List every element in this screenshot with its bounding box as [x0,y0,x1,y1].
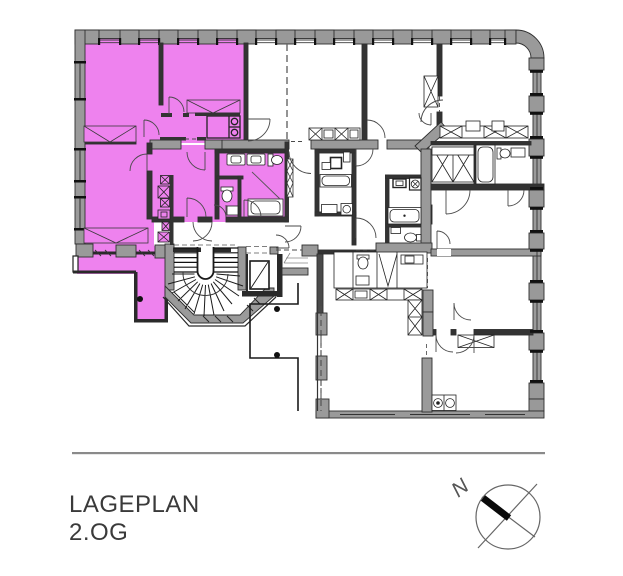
svg-text:2.OG: 2.OG [69,519,128,546]
svg-text:LAGEPLAN: LAGEPLAN [69,491,200,518]
